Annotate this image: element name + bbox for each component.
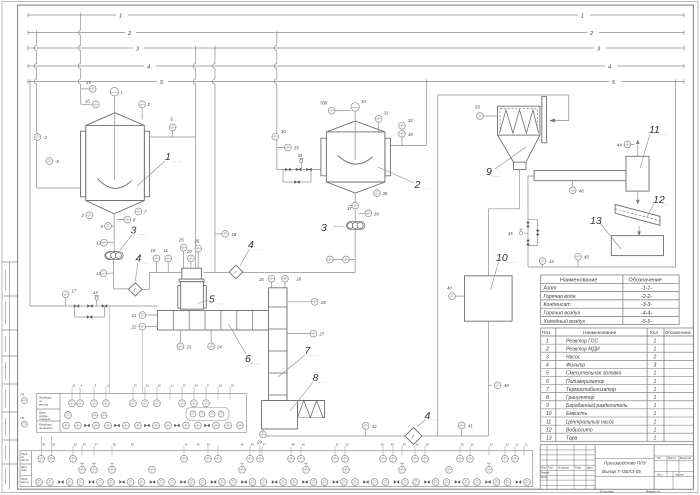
svg-text:Насос: Насос — [566, 355, 581, 361]
svg-text:48: 48 — [504, 383, 509, 388]
svg-text:33: 33 — [361, 99, 366, 104]
svg-text:12: 12 — [546, 427, 552, 433]
svg-text:24: 24 — [216, 344, 222, 349]
svg-text:41: 41 — [468, 423, 473, 428]
svg-text:1: 1 — [581, 13, 584, 19]
svg-text:Горячая вода: Горячая вода — [544, 294, 576, 300]
svg-text:Масса: Масса — [668, 456, 676, 460]
svg-text:6: 6 — [245, 353, 251, 365]
svg-text:12: 12 — [653, 194, 665, 206]
svg-text:46: 46 — [579, 188, 584, 193]
svg-text:39: 39 — [374, 211, 379, 216]
svg-text:-2-2-: -2-2- — [641, 294, 652, 300]
svg-text:Выпар Т-ОБЛЗ-05: Выпар Т-ОБЛЗ-05 — [602, 469, 641, 474]
svg-text:месту: месту — [39, 403, 49, 407]
svg-text:35: 35 — [294, 146, 299, 151]
svg-text:45: 45 — [508, 231, 513, 236]
svg-text:21: 21 — [131, 313, 137, 318]
svg-text:Масштаб: Масштаб — [680, 456, 692, 460]
svg-text:1: 1 — [654, 371, 657, 377]
svg-text:17: 17 — [72, 289, 77, 294]
svg-text:14: 14 — [93, 290, 98, 295]
svg-text:11: 11 — [164, 248, 168, 253]
svg-text:Подп.: Подп. — [575, 465, 582, 469]
svg-text:13: 13 — [96, 271, 101, 276]
svg-text:1: 1 — [654, 338, 657, 344]
svg-text:Гранулятор: Гранулятор — [566, 395, 595, 401]
svg-text:4: 4 — [136, 253, 142, 265]
svg-text:36: 36 — [408, 132, 413, 137]
svg-text:1: 1 — [654, 427, 657, 433]
svg-text:15: 15 — [86, 80, 91, 85]
svg-text:№ докум.: № докум. — [558, 466, 570, 469]
svg-text:торный: торный — [39, 417, 51, 421]
svg-text:-4-4-: -4-4- — [641, 311, 652, 317]
svg-text:1: 1 — [654, 419, 657, 425]
svg-text:13: 13 — [546, 436, 552, 442]
svg-text:5: 5 — [209, 294, 215, 306]
svg-text:Обозначение: Обозначение — [665, 330, 692, 335]
svg-text:28: 28 — [320, 300, 326, 305]
svg-text:Центральный насос: Центральный насос — [566, 418, 615, 425]
svg-text:Наименование: Наименование — [560, 277, 597, 283]
svg-text:11: 11 — [546, 419, 551, 425]
svg-text:Наименование: Наименование — [583, 330, 617, 336]
svg-text:Реактор ГСС: Реактор ГСС — [566, 338, 598, 344]
svg-text:Барабанный разделитель: Барабанный разделитель — [566, 402, 628, 409]
svg-text:7: 7 — [546, 387, 549, 393]
svg-text:9: 9 — [486, 166, 492, 178]
svg-text:Лист: Лист — [548, 465, 554, 469]
svg-text:2: 2 — [653, 355, 657, 361]
svg-text:1: 1 — [654, 395, 657, 401]
svg-text:22: 22 — [131, 325, 137, 330]
svg-text:3: 3 — [654, 363, 657, 369]
svg-text:Листов: Листов — [675, 473, 684, 477]
svg-text:Холодный воздух: Холодный воздух — [543, 318, 586, 325]
svg-text:4: 4 — [248, 239, 254, 251]
svg-text:Смесительная головка: Смесительная головка — [566, 371, 622, 377]
svg-text:Изм: Изм — [541, 465, 546, 469]
svg-text:Конденсат: Конденсат — [544, 302, 572, 308]
svg-text:26: 26 — [194, 239, 200, 244]
svg-text:2: 2 — [414, 179, 421, 191]
svg-text:18: 18 — [232, 232, 237, 237]
svg-text:Полимеризатор: Полимеризатор — [566, 379, 605, 385]
svg-text:11: 11 — [649, 124, 660, 136]
svg-text:Разраб.: Разраб. — [541, 470, 551, 474]
svg-text:Горячий воздух: Горячий воздух — [544, 310, 581, 317]
svg-text:Поз: Поз — [542, 330, 551, 336]
svg-text:Производство ППУ: Производство ППУ — [604, 461, 647, 466]
svg-text:4: 4 — [147, 64, 150, 70]
svg-text:1: 1 — [121, 89, 123, 94]
svg-text:Формат А1: Формат А1 — [646, 490, 661, 494]
svg-text:1: 1 — [654, 411, 657, 417]
svg-text:Обозначение: Обозначение — [629, 277, 662, 283]
svg-text:Азот: Азот — [543, 286, 558, 292]
svg-text:6: 6 — [546, 379, 549, 385]
svg-text:Вибросито: Вибросито — [566, 427, 593, 433]
svg-text:Пб: Пб — [21, 393, 25, 397]
svg-text:Кол: Кол — [650, 330, 658, 336]
svg-text:10: 10 — [151, 248, 156, 253]
svg-text:4: 4 — [546, 363, 549, 369]
svg-text:Термостабилизатор: Термостабилизатор — [566, 387, 616, 393]
svg-text:1: 1 — [654, 403, 657, 409]
svg-text:3: 3 — [546, 355, 549, 361]
svg-text:опер.: опер. — [21, 469, 28, 472]
svg-text:1: 1 — [165, 151, 171, 163]
svg-text:4: 4 — [608, 64, 611, 70]
svg-text:1: 1 — [546, 338, 549, 344]
svg-text:25: 25 — [178, 238, 184, 243]
svg-text:23: 23 — [186, 344, 192, 349]
svg-text:-5-5-: -5-5- — [641, 319, 652, 325]
svg-text:38: 38 — [383, 191, 388, 196]
svg-text:Тара: Тара — [566, 436, 578, 442]
svg-text:1: 1 — [654, 379, 657, 385]
svg-text:12: 12 — [97, 241, 102, 246]
svg-text:Лит.: Лит. — [657, 456, 662, 460]
svg-text:8: 8 — [313, 372, 319, 384]
svg-text:1: 1 — [119, 13, 122, 19]
svg-text:Дата: Дата — [587, 465, 593, 469]
svg-text:3: 3 — [321, 222, 327, 234]
svg-text:20: 20 — [186, 249, 192, 254]
svg-text:45: 45 — [584, 255, 589, 260]
svg-text:70б: 70б — [320, 101, 328, 106]
svg-text:-3-3-: -3-3- — [641, 302, 652, 308]
svg-text:Реактор МДИ: Реактор МДИ — [566, 346, 600, 352]
svg-text:10: 10 — [496, 252, 508, 264]
svg-text:37: 37 — [347, 206, 352, 211]
svg-text:Пв: Пв — [21, 416, 25, 420]
svg-text:Лист: Лист — [657, 473, 663, 477]
svg-text:27: 27 — [319, 332, 325, 337]
svg-text:44: 44 — [617, 142, 622, 147]
svg-text:25: 25 — [258, 277, 264, 282]
svg-text:по месту: по месту — [39, 426, 53, 430]
svg-text:40: 40 — [447, 286, 452, 291]
svg-text:2: 2 — [545, 346, 549, 352]
svg-text:Пров.: Пров. — [541, 475, 548, 479]
svg-text:32: 32 — [408, 118, 413, 123]
svg-text:месту: месту — [21, 481, 30, 484]
svg-text:30: 30 — [281, 129, 286, 134]
svg-text:Копировал: Копировал — [600, 490, 614, 494]
svg-text:13: 13 — [590, 215, 602, 227]
svg-text:Фильтр: Фильтр — [566, 363, 585, 369]
svg-text:3: 3 — [131, 225, 137, 237]
svg-text:1: 1 — [654, 436, 657, 442]
svg-text:34: 34 — [298, 153, 303, 158]
svg-text:Емкость: Емкость — [566, 411, 588, 417]
svg-text:33: 33 — [475, 105, 480, 110]
svg-text:26: 26 — [296, 277, 302, 282]
svg-text:42: 42 — [372, 424, 377, 429]
svg-text:5: 5 — [546, 371, 549, 377]
svg-text:1: 1 — [654, 346, 657, 352]
svg-text:43: 43 — [549, 259, 554, 264]
svg-text:29: 29 — [256, 440, 262, 445]
svg-text:31: 31 — [384, 111, 389, 116]
svg-text:9: 9 — [546, 403, 549, 409]
svg-text:месту: месту — [21, 459, 30, 462]
svg-text:1: 1 — [654, 387, 657, 393]
svg-text:10: 10 — [546, 411, 552, 417]
svg-text:4: 4 — [425, 410, 431, 422]
svg-text:8: 8 — [546, 395, 549, 401]
svg-text:-1-1-: -1-1- — [641, 286, 652, 292]
svg-text:16: 16 — [85, 99, 90, 104]
